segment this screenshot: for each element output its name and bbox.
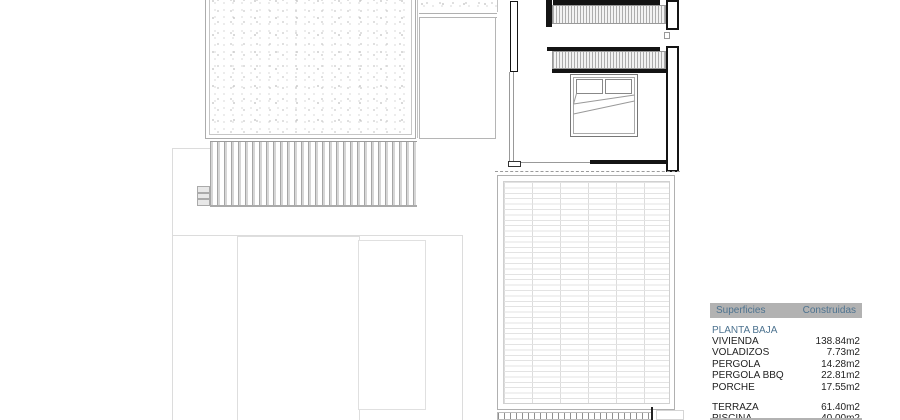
row-label: VIVIENDA [712,336,759,347]
paved-court [419,17,496,139]
wall-pillar [510,1,518,72]
legend-header: Superficies Construidas [710,303,862,318]
table-row: PORCHE 17.55m2 [712,382,860,393]
right-wall-lower [666,46,679,172]
door-threshold [508,161,521,167]
legend-col-superficies: Superficies [716,305,765,316]
section-title-planta-baja: PLANTA BAJA [712,325,860,336]
overhang-dashed-line [495,171,680,172]
step-3 [197,199,210,206]
row-label: PERGOLA [712,359,760,370]
pool-side-deck [358,240,426,410]
bottom-wall [590,160,667,164]
window-jamb [664,32,670,39]
deck-planks [503,181,670,404]
plot-boundary-top-line [172,148,210,149]
row-label: PORCHE [712,382,755,393]
table-row: TERRAZA 61.40m2 [712,402,860,413]
deck-terrace [497,175,675,410]
legend-section-gap [712,393,860,402]
surfaces-legend: Superficies Construidas PLANTA BAJA VIVI… [710,303,862,420]
table-row: VOLADIZOS 7.73m2 [712,347,860,358]
floor-plan-sheet: Superficies Construidas PLANTA BAJA VIVI… [0,0,900,420]
row-label: PERGOLA BBQ [712,370,784,381]
bottom-wall-tick [651,407,653,420]
bottom-pergola-strip [497,412,653,420]
bottom-small-structure [656,410,684,420]
legend-body: PLANTA BAJA VIVIENDA 138.84m2 VOLADIZOS … [710,318,862,420]
gravel-strip [419,0,498,12]
row-value: 7.73m2 [827,347,860,358]
row-value: 14.28m2 [821,359,860,370]
wardrobe-2 [552,51,666,69]
row-label: VOLADIZOS [712,347,769,358]
bottom-window-line [518,162,592,163]
table-row: PERGOLA 14.28m2 [712,359,860,370]
terrace-boundary-right-line [462,235,463,420]
table-row: PERGOLA BBQ 22.81m2 [712,370,860,381]
gravel-edge-line [417,0,418,138]
gravel-texture [209,0,412,135]
pool [237,236,360,420]
window-glazing [509,72,514,162]
legend-col-construidas: Construidas [803,305,856,316]
wardrobe-1 [552,5,666,24]
row-label: TERRAZA [712,402,759,413]
row-value: 138.84m2 [816,336,860,347]
bed [570,74,638,137]
row-value: 61.40m2 [821,402,860,413]
wardrobe-2-bottom-wall [552,69,668,73]
gravel-terrace [205,0,416,139]
table-row: VIVIENDA 138.84m2 [712,336,860,347]
row-value: 22.81m2 [821,370,860,381]
plot-boundary-left-line [172,148,173,420]
row-value: 17.55m2 [821,382,860,393]
pergola-slats [210,141,417,207]
right-wall-upper [666,0,679,30]
